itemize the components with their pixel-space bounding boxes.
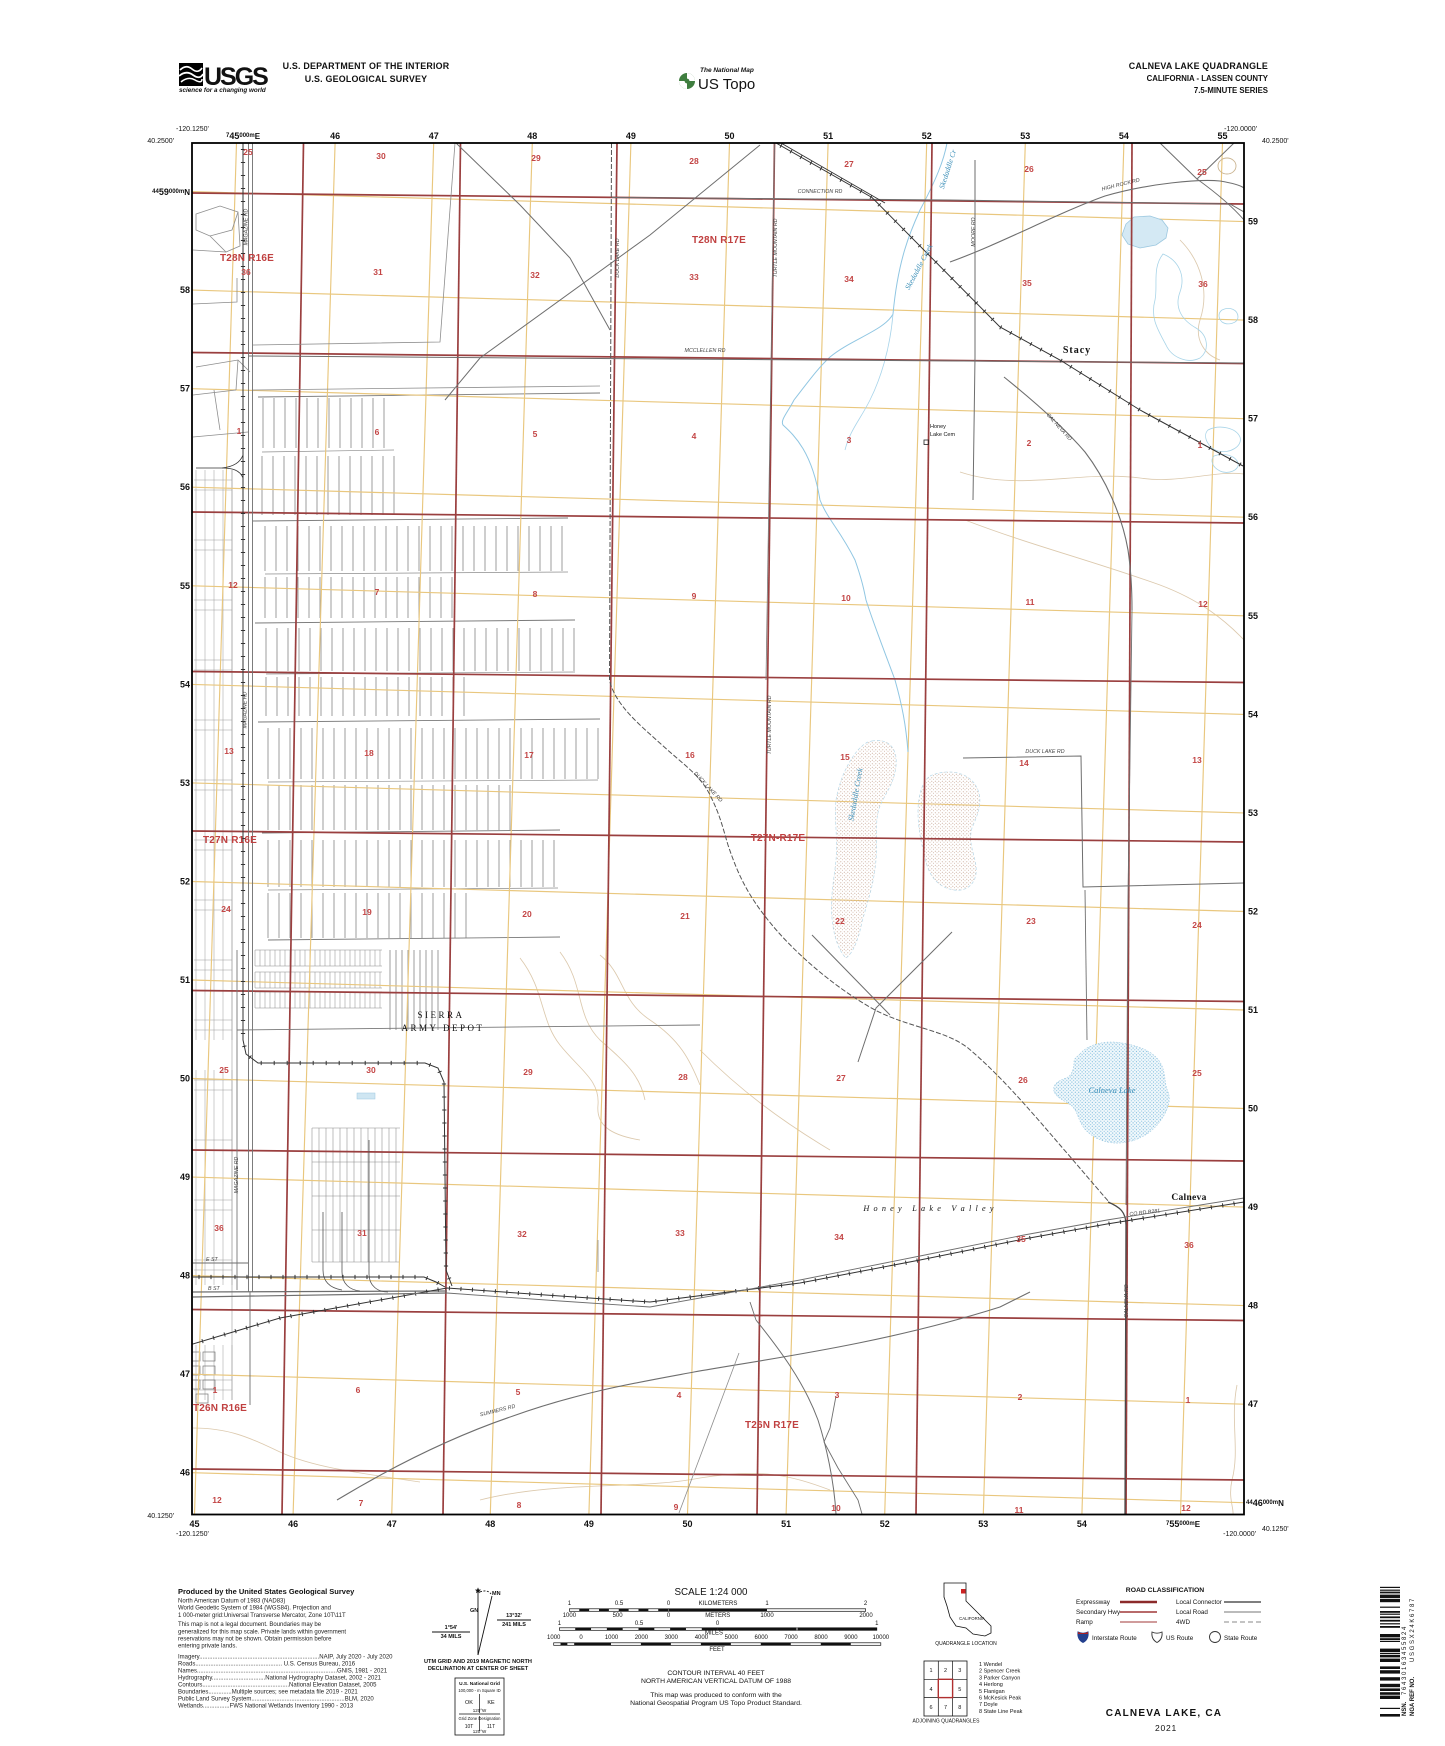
svg-text:7 6 4 3 0 1 6 3 4 5 5 8 2 4: 7 6 4 3 0 1 6 3 4 5 5 8 2 4 bbox=[1402, 1626, 1408, 1695]
svg-text:54: 54 bbox=[1119, 131, 1129, 141]
svg-text:5: 5 bbox=[958, 1687, 961, 1693]
svg-text:DUCK LAKE RD: DUCK LAKE RD bbox=[615, 238, 621, 277]
svg-text:40.1250': 40.1250' bbox=[147, 1513, 174, 1520]
svg-text:1°54': 1°54' bbox=[445, 1625, 458, 1631]
svg-text:49: 49 bbox=[180, 1172, 190, 1182]
svg-text:Local Road: Local Road bbox=[1176, 1609, 1208, 1616]
svg-text:100,000 - m Square ID: 100,000 - m Square ID bbox=[458, 1688, 500, 1693]
svg-text:Local Connector: Local Connector bbox=[1176, 1599, 1222, 1606]
svg-text:2: 2 bbox=[944, 1668, 947, 1674]
svg-text:8000: 8000 bbox=[814, 1635, 828, 1641]
svg-text:10000: 10000 bbox=[872, 1635, 889, 1641]
svg-text:6 McKesick Peak: 6 McKesick Peak bbox=[979, 1696, 1021, 1702]
svg-text:7: 7 bbox=[944, 1705, 947, 1711]
svg-text:8 State Line Peak: 8 State Line Peak bbox=[979, 1709, 1023, 1715]
svg-text:49: 49 bbox=[626, 131, 636, 141]
svg-text:40.2500': 40.2500' bbox=[147, 138, 174, 145]
svg-text:120°W: 120°W bbox=[473, 1708, 487, 1713]
svg-text:ADJOINING QUADRANGLES: ADJOINING QUADRANGLES bbox=[913, 1719, 981, 1725]
svg-text:Calneva: Calneva bbox=[1171, 1193, 1206, 1203]
svg-text:CONNECTION RD: CONNECTION RD bbox=[798, 189, 843, 195]
svg-text:DECLINATION AT CENTER OF SHEET: DECLINATION AT CENTER OF SHEET bbox=[428, 1666, 529, 1672]
svg-text:48: 48 bbox=[180, 1271, 190, 1281]
svg-text:16: 16 bbox=[685, 750, 695, 760]
svg-text:47: 47 bbox=[1248, 1399, 1258, 1409]
svg-text:State Route: State Route bbox=[1224, 1635, 1258, 1642]
svg-text:Roads.........................: Roads...................................… bbox=[178, 1661, 356, 1667]
svg-text:7: 7 bbox=[359, 1498, 364, 1508]
svg-text:2: 2 bbox=[1027, 438, 1032, 448]
svg-text:World Geodetic System of 1984: World Geodetic System of 1984 (WGS84). P… bbox=[178, 1606, 331, 1612]
svg-text:33: 33 bbox=[675, 1228, 685, 1238]
svg-text:SIERRA: SIERRA bbox=[417, 1010, 464, 1020]
svg-text:29: 29 bbox=[523, 1067, 533, 1077]
svg-text:47: 47 bbox=[429, 131, 439, 141]
svg-text:Names.........................: Names...................................… bbox=[178, 1668, 388, 1674]
svg-text:24: 24 bbox=[1192, 920, 1202, 930]
svg-text:U.S. GEOLOGICAL SURVEY: U.S. GEOLOGICAL SURVEY bbox=[305, 74, 427, 84]
svg-text:48: 48 bbox=[485, 1519, 495, 1529]
svg-text:36: 36 bbox=[241, 267, 251, 277]
svg-text:Produced by the United States: Produced by the United States Geological… bbox=[178, 1587, 355, 1596]
svg-text:U.S. National Grid: U.S. National Grid bbox=[459, 1681, 500, 1687]
svg-text:Contours......................: Contours................................… bbox=[178, 1682, 377, 1688]
svg-text:U.S. DEPARTMENT OF THE INTERIO: U.S. DEPARTMENT OF THE INTERIOR bbox=[283, 61, 450, 71]
svg-text:49: 49 bbox=[1248, 1202, 1258, 1212]
svg-text:4000: 4000 bbox=[695, 1635, 709, 1641]
svg-text:US Topo: US Topo bbox=[698, 76, 755, 93]
svg-text:T28N R16E: T28N R16E bbox=[220, 253, 274, 264]
svg-text:Interstate Route: Interstate Route bbox=[1092, 1635, 1137, 1642]
svg-text:3000: 3000 bbox=[665, 1635, 679, 1641]
svg-text:FEET: FEET bbox=[709, 1647, 725, 1653]
svg-text:50: 50 bbox=[1248, 1104, 1258, 1114]
svg-text:entering private lands.: entering private lands. bbox=[178, 1644, 237, 1650]
svg-text:DUCK LAKE RD: DUCK LAKE RD bbox=[1025, 749, 1064, 755]
svg-text:ROAD CLASSIFICATION: ROAD CLASSIFICATION bbox=[1126, 1587, 1205, 1594]
svg-text:8: 8 bbox=[517, 1500, 522, 1510]
svg-text:3: 3 bbox=[847, 435, 852, 445]
svg-text:2: 2 bbox=[1018, 1392, 1023, 1402]
svg-text:B ST: B ST bbox=[208, 1286, 221, 1292]
svg-text:2021: 2021 bbox=[1155, 1723, 1177, 1733]
svg-text:6000: 6000 bbox=[755, 1635, 769, 1641]
svg-text:CALIFORNIA - LASSEN COUNTY: CALIFORNIA - LASSEN COUNTY bbox=[1147, 74, 1269, 83]
svg-text:10: 10 bbox=[841, 593, 851, 603]
svg-text:31: 31 bbox=[373, 267, 383, 277]
svg-text:Expressway: Expressway bbox=[1076, 1599, 1111, 1606]
svg-text:53: 53 bbox=[180, 778, 190, 788]
svg-text:U S G S X 2 4 K 6 7 8 7: U S G S X 2 4 K 6 7 8 7 bbox=[1410, 1598, 1416, 1662]
svg-text:3: 3 bbox=[835, 1390, 840, 1400]
svg-text:reservations may not be shown.: reservations may not be shown. Obtain pe… bbox=[178, 1637, 332, 1643]
svg-text:51: 51 bbox=[823, 131, 833, 141]
svg-text:120°W: 120°W bbox=[473, 1729, 487, 1734]
svg-text:10: 10 bbox=[831, 1503, 841, 1513]
svg-text:-120.0000': -120.0000' bbox=[1223, 1531, 1256, 1538]
svg-text:40.1250': 40.1250' bbox=[1262, 1526, 1289, 1533]
svg-text:T27N R16E: T27N R16E bbox=[203, 835, 257, 846]
svg-text:UTM GRID AND 2019 MAGNETIC NOR: UTM GRID AND 2019 MAGNETIC NORTH bbox=[424, 1659, 532, 1665]
svg-text:Hydrography...................: Hydrography.............................… bbox=[178, 1675, 382, 1681]
svg-text:12: 12 bbox=[1181, 1503, 1191, 1513]
svg-text:3 Parker Canyon: 3 Parker Canyon bbox=[979, 1675, 1020, 1681]
svg-text:34: 34 bbox=[834, 1232, 844, 1242]
svg-text:36: 36 bbox=[1184, 1240, 1194, 1250]
svg-text:QUADRANGLE LOCATION: QUADRANGLE LOCATION bbox=[935, 1641, 997, 1647]
svg-text:12: 12 bbox=[1198, 599, 1208, 609]
svg-text:22: 22 bbox=[835, 916, 845, 926]
svg-text:57: 57 bbox=[1248, 414, 1258, 424]
svg-text:1: 1 bbox=[213, 1385, 218, 1395]
svg-text:1000: 1000 bbox=[760, 1613, 774, 1619]
svg-text:Boundaries..............Multip: Boundaries..............Multiple sources… bbox=[178, 1689, 358, 1695]
svg-text:1000: 1000 bbox=[563, 1613, 577, 1619]
svg-text:NSN.: NSN. bbox=[1402, 1701, 1408, 1716]
svg-text:MAGAZINE RD: MAGAZINE RD bbox=[244, 208, 250, 245]
svg-text:4: 4 bbox=[677, 1390, 682, 1400]
svg-text:Ramp: Ramp bbox=[1076, 1619, 1093, 1626]
svg-text:6: 6 bbox=[929, 1705, 932, 1711]
svg-text:46: 46 bbox=[180, 1468, 190, 1478]
svg-text:14: 14 bbox=[1019, 758, 1029, 768]
svg-text:4: 4 bbox=[692, 431, 697, 441]
svg-text:0.5: 0.5 bbox=[615, 1601, 624, 1607]
svg-text:3: 3 bbox=[958, 1668, 961, 1674]
svg-text:KILOMETERS: KILOMETERS bbox=[699, 1601, 738, 1607]
svg-text:34 MILS: 34 MILS bbox=[441, 1634, 462, 1640]
svg-text:26: 26 bbox=[1018, 1075, 1028, 1085]
svg-text:5 Flanigan: 5 Flanigan bbox=[979, 1689, 1005, 1695]
svg-text:North American Datum of 1983 (: North American Datum of 1983 (NAD83) bbox=[178, 1599, 285, 1605]
svg-text:55: 55 bbox=[1217, 131, 1227, 141]
svg-text:The National Map: The National Map bbox=[700, 67, 754, 74]
svg-text:Imagery.......................: Imagery.................................… bbox=[178, 1654, 393, 1660]
svg-text:241 MILS: 241 MILS bbox=[502, 1622, 526, 1628]
svg-text:-120.0000': -120.0000' bbox=[1224, 126, 1257, 133]
svg-text:21: 21 bbox=[680, 911, 690, 921]
svg-text:This map is not a legal docume: This map is not a legal document. Bounda… bbox=[178, 1622, 322, 1628]
svg-text:CALNEVA LAKE QUADRANGLE: CALNEVA LAKE QUADRANGLE bbox=[1129, 61, 1268, 71]
svg-text:50: 50 bbox=[180, 1074, 190, 1084]
svg-text:23: 23 bbox=[1026, 916, 1036, 926]
svg-text:T26N R17E: T26N R17E bbox=[745, 1420, 799, 1431]
svg-text:56: 56 bbox=[180, 482, 190, 492]
svg-text:36: 36 bbox=[1198, 279, 1208, 289]
svg-text:NORTH AMERICAN VERTICAL DATUM: NORTH AMERICAN VERTICAL DATUM OF 1988 bbox=[641, 1678, 791, 1685]
svg-text:20: 20 bbox=[522, 909, 532, 919]
svg-text:CALNEVA RD: CALNEVA RD bbox=[1124, 1284, 1130, 1318]
svg-text:18: 18 bbox=[364, 748, 374, 758]
svg-text:54: 54 bbox=[1248, 709, 1258, 719]
svg-text:TURTLE MOUNTAIN RD: TURTLE MOUNTAIN RD bbox=[773, 218, 779, 277]
svg-text:8: 8 bbox=[533, 589, 538, 599]
svg-text:12: 12 bbox=[228, 580, 238, 590]
svg-text:T26N R16E: T26N R16E bbox=[193, 1403, 247, 1414]
svg-text:MCCLELLEN RD: MCCLELLEN RD bbox=[685, 348, 726, 354]
svg-text:24: 24 bbox=[221, 904, 231, 914]
svg-text:47: 47 bbox=[180, 1369, 190, 1379]
svg-text:33: 33 bbox=[689, 272, 699, 282]
svg-text:27: 27 bbox=[836, 1073, 846, 1083]
svg-text:26: 26 bbox=[1024, 164, 1034, 174]
svg-text:OK: OK bbox=[465, 1700, 473, 1706]
svg-text:500: 500 bbox=[613, 1613, 624, 1619]
svg-text:13°32': 13°32' bbox=[506, 1613, 522, 1619]
svg-text:25: 25 bbox=[1197, 167, 1207, 177]
svg-text:54: 54 bbox=[1077, 1519, 1087, 1529]
svg-text:49: 49 bbox=[584, 1519, 594, 1529]
svg-text:28: 28 bbox=[689, 156, 699, 166]
svg-text:32: 32 bbox=[517, 1229, 527, 1239]
svg-text:0.5: 0.5 bbox=[635, 1621, 644, 1627]
svg-text:SCALE 1:24 000: SCALE 1:24 000 bbox=[675, 1587, 749, 1598]
svg-text:1000: 1000 bbox=[547, 1635, 561, 1641]
svg-text:35: 35 bbox=[1022, 278, 1032, 288]
svg-text:6: 6 bbox=[375, 427, 380, 437]
svg-text:57: 57 bbox=[180, 384, 190, 394]
svg-text:This map was produced to confo: This map was produced to conform with th… bbox=[650, 1692, 782, 1699]
svg-text:51: 51 bbox=[180, 975, 190, 985]
svg-text:7 Doyle: 7 Doyle bbox=[979, 1702, 998, 1708]
svg-text:54: 54 bbox=[180, 679, 190, 689]
svg-text:15: 15 bbox=[840, 752, 850, 762]
svg-text:9: 9 bbox=[692, 591, 697, 601]
svg-text:8: 8 bbox=[958, 1705, 961, 1711]
svg-text:36: 36 bbox=[214, 1223, 224, 1233]
svg-text:30: 30 bbox=[366, 1065, 376, 1075]
svg-text:48: 48 bbox=[527, 131, 537, 141]
svg-text:4 Herlong: 4 Herlong bbox=[979, 1682, 1003, 1688]
svg-text:31: 31 bbox=[357, 1228, 367, 1238]
svg-text:NGA REF NO.: NGA REF NO. bbox=[1410, 1677, 1416, 1716]
svg-text:11: 11 bbox=[1015, 1505, 1024, 1515]
svg-text:47: 47 bbox=[387, 1519, 397, 1529]
svg-text:Honey: Honey bbox=[930, 424, 946, 430]
svg-text:1: 1 bbox=[929, 1668, 932, 1674]
svg-text:2000: 2000 bbox=[635, 1635, 649, 1641]
svg-text:25: 25 bbox=[219, 1065, 229, 1075]
svg-text:MN: MN bbox=[492, 1591, 501, 1597]
svg-text:7: 7 bbox=[375, 587, 380, 597]
svg-text:53: 53 bbox=[978, 1519, 988, 1529]
svg-text:ARMY DEPOT: ARMY DEPOT bbox=[402, 1023, 485, 1033]
svg-text:National Geospatial Program US: National Geospatial Program US Topo Prod… bbox=[630, 1700, 802, 1707]
svg-text:28: 28 bbox=[678, 1072, 688, 1082]
svg-text:1: 1 bbox=[1198, 440, 1203, 450]
svg-text:11T: 11T bbox=[487, 1724, 495, 1730]
svg-text:T27N-R17E: T27N-R17E bbox=[751, 833, 806, 844]
svg-text:6: 6 bbox=[356, 1385, 361, 1395]
svg-text:45: 45 bbox=[189, 1519, 199, 1529]
svg-text:1000: 1000 bbox=[605, 1635, 619, 1641]
svg-text:46: 46 bbox=[288, 1519, 298, 1529]
svg-text:Public Land Survey Syste: Public Land Survey System...............… bbox=[178, 1696, 374, 1702]
svg-text:50: 50 bbox=[682, 1519, 692, 1529]
svg-text:13: 13 bbox=[224, 746, 234, 756]
svg-text:US Route: US Route bbox=[1166, 1635, 1194, 1642]
svg-text:CALNEVA LAKE, CA: CALNEVA LAKE, CA bbox=[1106, 1708, 1222, 1719]
svg-text:5: 5 bbox=[516, 1387, 521, 1397]
svg-text:48: 48 bbox=[1248, 1301, 1258, 1311]
svg-text:53: 53 bbox=[1020, 131, 1030, 141]
svg-text:Wetlands................FWS N: Wetlands................FWS National Wet… bbox=[178, 1703, 354, 1709]
svg-text:35: 35 bbox=[1016, 1234, 1026, 1244]
svg-text:52: 52 bbox=[922, 131, 932, 141]
svg-text:11: 11 bbox=[1026, 597, 1035, 607]
svg-text:58: 58 bbox=[1248, 315, 1258, 325]
svg-text:9: 9 bbox=[674, 1502, 679, 1512]
svg-text:53: 53 bbox=[1248, 808, 1258, 818]
svg-text:MAGAZINE RD: MAGAZINE RD bbox=[243, 691, 249, 728]
svg-text:1 Wendel: 1 Wendel bbox=[979, 1662, 1002, 1668]
svg-text:CALIFORNIA: CALIFORNIA bbox=[959, 1616, 985, 1621]
svg-text:50: 50 bbox=[724, 131, 734, 141]
svg-text:E ST: E ST bbox=[206, 1257, 219, 1263]
svg-text:METERS: METERS bbox=[705, 1613, 730, 1619]
svg-text:Secondary Hwy: Secondary Hwy bbox=[1076, 1609, 1121, 1616]
svg-text:55: 55 bbox=[1248, 611, 1258, 621]
svg-text:52: 52 bbox=[880, 1519, 890, 1529]
svg-text:GN: GN bbox=[470, 1608, 478, 1614]
svg-text:19: 19 bbox=[362, 907, 372, 917]
svg-text:5: 5 bbox=[533, 429, 538, 439]
svg-text:32: 32 bbox=[530, 270, 540, 280]
svg-text:Calneva Lake: Calneva Lake bbox=[1089, 1085, 1136, 1095]
svg-text:25: 25 bbox=[1192, 1068, 1202, 1078]
svg-text:52: 52 bbox=[1248, 907, 1258, 917]
svg-text:25: 25 bbox=[243, 147, 253, 157]
svg-text:55: 55 bbox=[180, 581, 190, 591]
svg-text:-120.1250': -120.1250' bbox=[176, 1531, 209, 1538]
svg-text:H o n e y L a k e V a l l: H o n e y L a k e V a l l e y bbox=[862, 1204, 994, 1213]
svg-text:46: 46 bbox=[330, 131, 340, 141]
svg-text:T28N R17E: T28N R17E bbox=[692, 235, 746, 246]
svg-text:34: 34 bbox=[844, 274, 854, 284]
svg-text:30: 30 bbox=[376, 151, 386, 161]
svg-text:1: 1 bbox=[237, 426, 242, 436]
svg-text:17: 17 bbox=[524, 750, 534, 760]
svg-text:29: 29 bbox=[531, 153, 541, 163]
svg-text:generalized for this map scale: generalized for this map scale. Private … bbox=[178, 1629, 346, 1635]
svg-text:40.2500': 40.2500' bbox=[1262, 138, 1289, 145]
svg-text:12: 12 bbox=[212, 1495, 222, 1505]
svg-text:2000: 2000 bbox=[859, 1613, 873, 1619]
svg-text:7000: 7000 bbox=[784, 1635, 798, 1641]
svg-text:1 000-meter grid:Universal Tra: 1 000-meter grid:Universal Transverse Me… bbox=[178, 1613, 346, 1619]
svg-text:TURTLE MOUNTAIN RD: TURTLE MOUNTAIN RD bbox=[767, 695, 773, 754]
svg-text:52: 52 bbox=[180, 877, 190, 887]
svg-text:51: 51 bbox=[1248, 1005, 1258, 1015]
svg-text:13: 13 bbox=[1192, 755, 1202, 765]
svg-text:9000: 9000 bbox=[844, 1635, 858, 1641]
svg-text:Lake Cem: Lake Cem bbox=[930, 432, 955, 438]
svg-text:58: 58 bbox=[180, 285, 190, 295]
svg-text:science for a changing world: science for a changing world bbox=[179, 87, 266, 94]
svg-text:2 Spencer Creek: 2 Spencer Creek bbox=[979, 1669, 1021, 1675]
svg-text:KE: KE bbox=[487, 1700, 495, 1706]
svg-text:5000: 5000 bbox=[725, 1635, 739, 1641]
svg-text:51: 51 bbox=[781, 1519, 791, 1529]
svg-text:4: 4 bbox=[929, 1687, 932, 1693]
svg-text:MAGAZINE RD: MAGAZINE RD bbox=[234, 1156, 240, 1193]
svg-text:7.5-MINUTE SERIES: 7.5-MINUTE SERIES bbox=[1194, 86, 1268, 95]
svg-text:56: 56 bbox=[1248, 512, 1258, 522]
svg-text:27: 27 bbox=[844, 159, 854, 169]
svg-text:MOORE RD: MOORE RD bbox=[971, 217, 977, 246]
svg-text:59: 59 bbox=[1248, 217, 1258, 227]
svg-text:Stacy: Stacy bbox=[1063, 345, 1091, 356]
svg-text:1: 1 bbox=[1186, 1395, 1191, 1405]
svg-text:CONTOUR INTERVAL 40 FEET: CONTOUR INTERVAL 40 FEET bbox=[667, 1670, 764, 1677]
svg-text:-120.1250': -120.1250' bbox=[176, 126, 209, 133]
svg-text:4WD: 4WD bbox=[1176, 1619, 1190, 1626]
